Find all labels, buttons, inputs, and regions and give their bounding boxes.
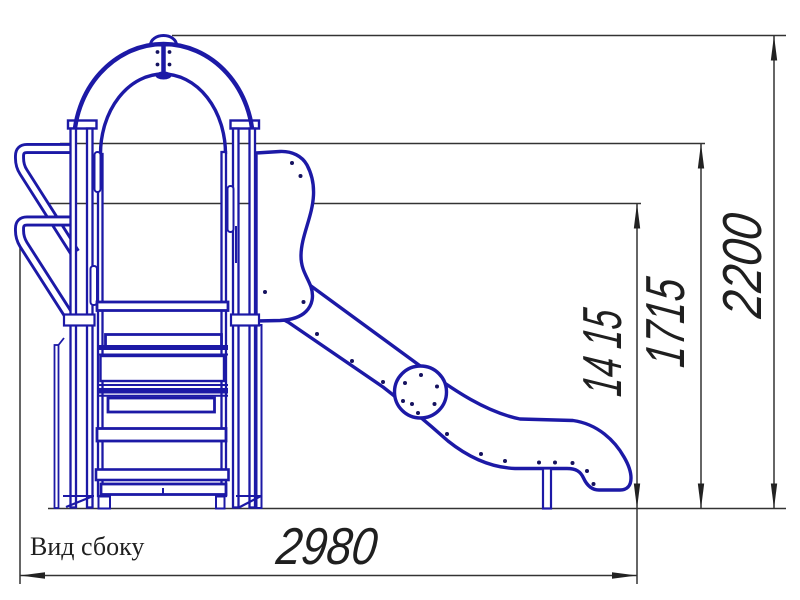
svg-text:1715: 1715 (634, 274, 696, 370)
svg-text:14 15: 14 15 (571, 305, 633, 399)
svg-text:Вид сбоку: Вид сбоку (30, 532, 144, 561)
svg-text:2200: 2200 (711, 210, 773, 322)
svg-text:2980: 2980 (273, 518, 381, 576)
